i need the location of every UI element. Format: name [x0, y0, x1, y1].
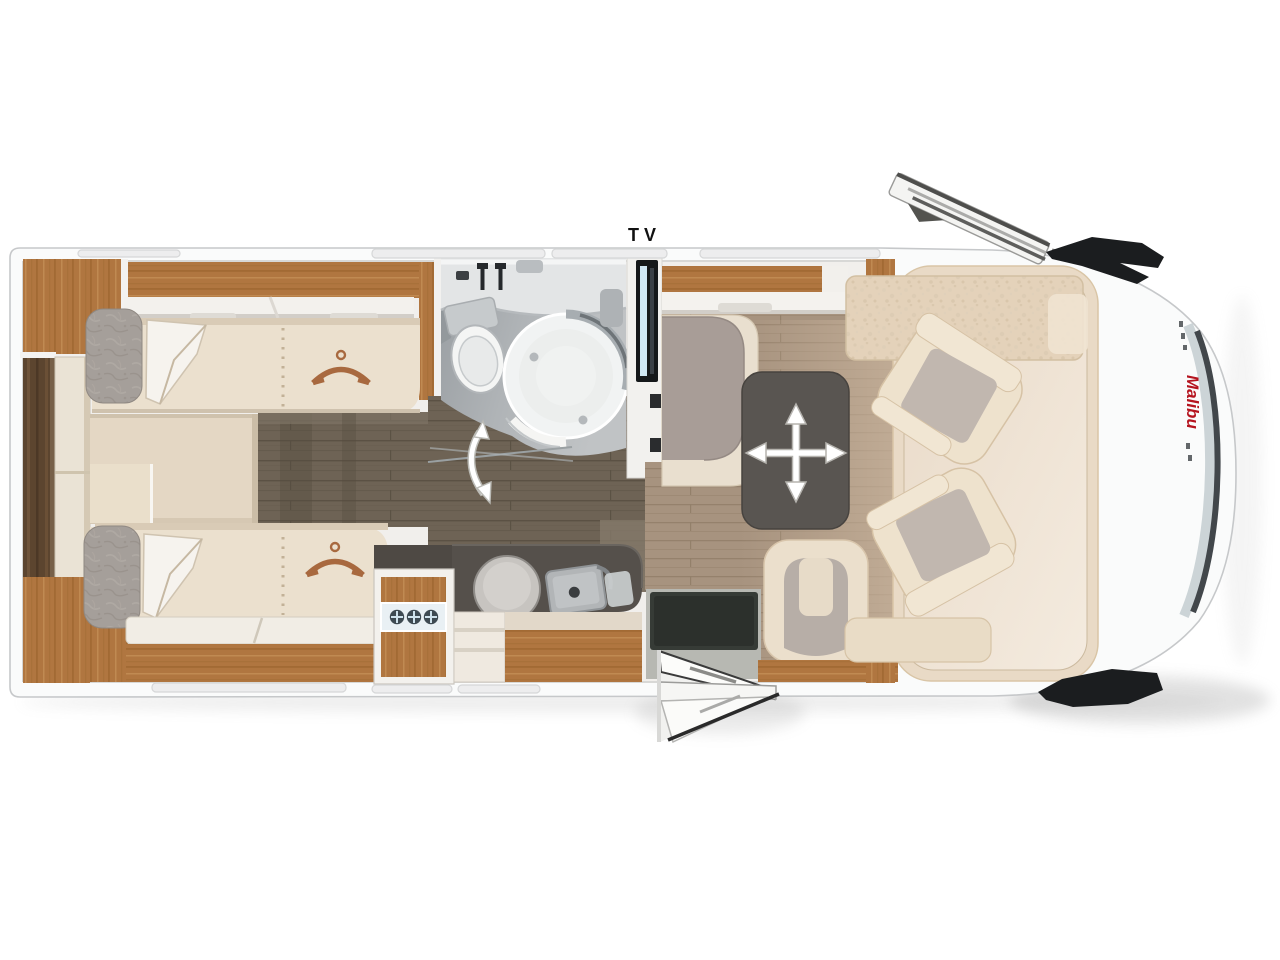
svg-text:TV: TV — [628, 225, 661, 245]
svg-text:Malibu: Malibu — [1183, 375, 1202, 429]
